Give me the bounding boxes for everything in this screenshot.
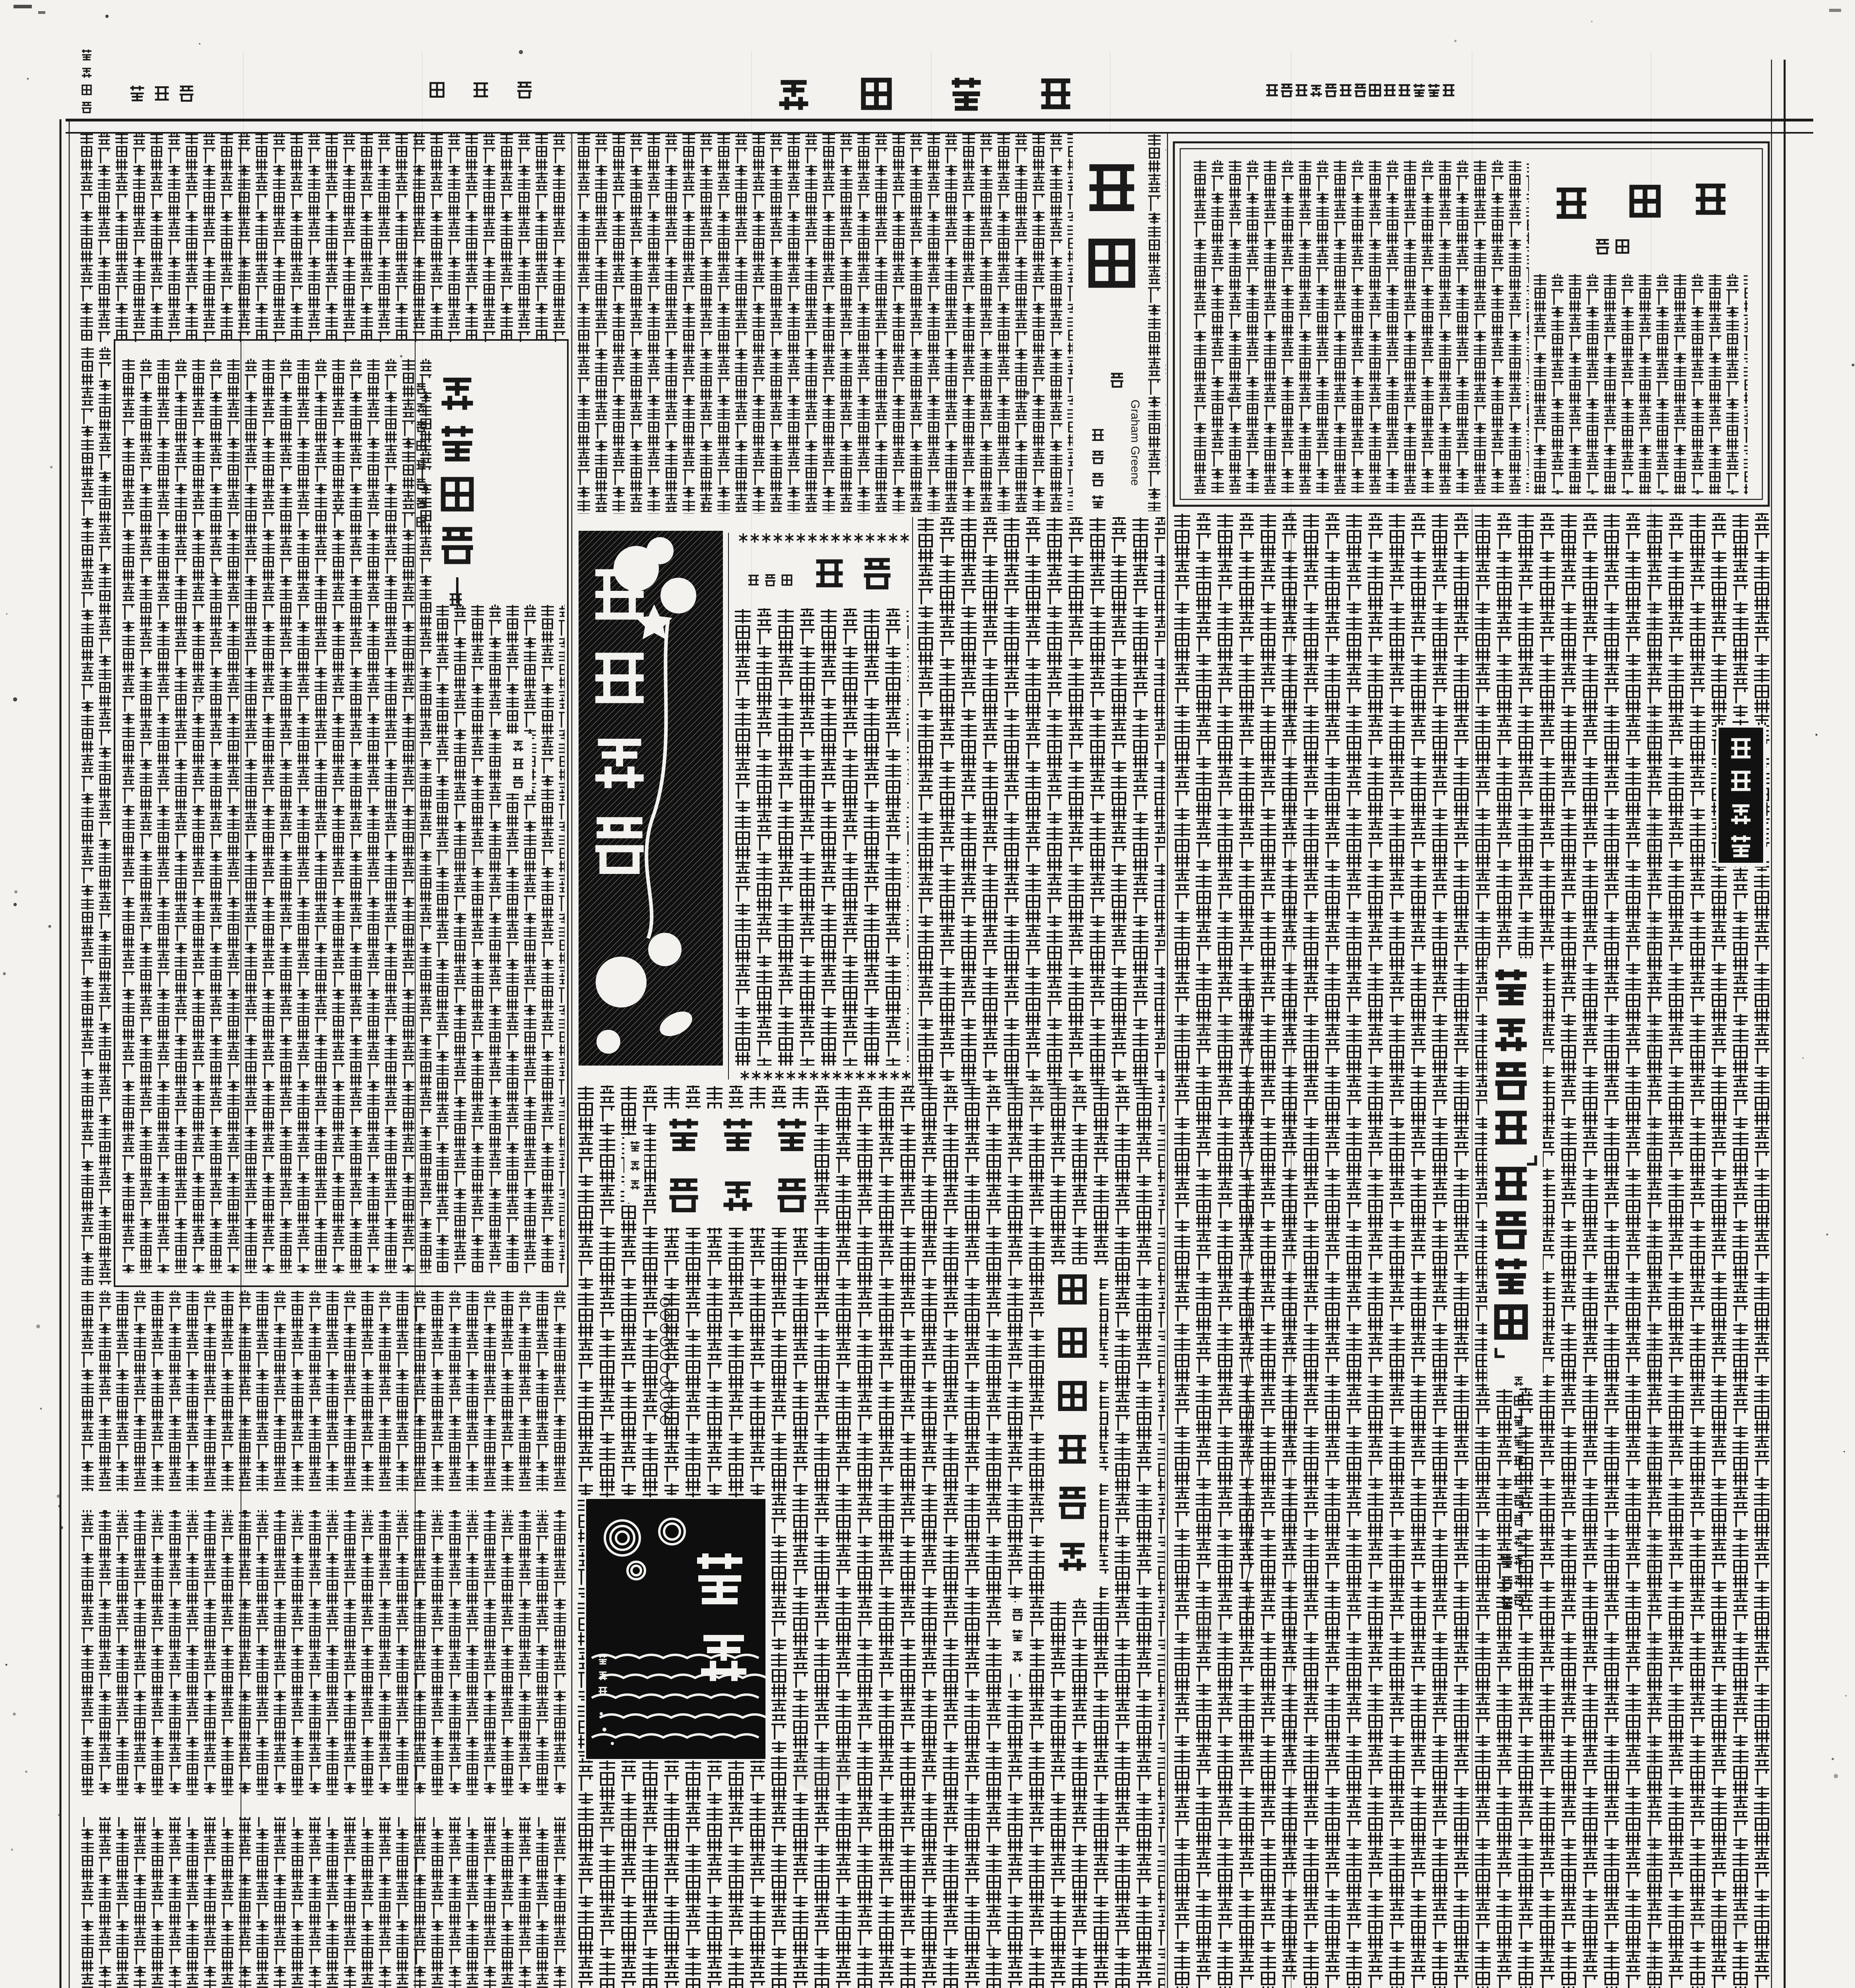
svg-text:Graham Greene: Graham Greene: [1129, 400, 1142, 486]
